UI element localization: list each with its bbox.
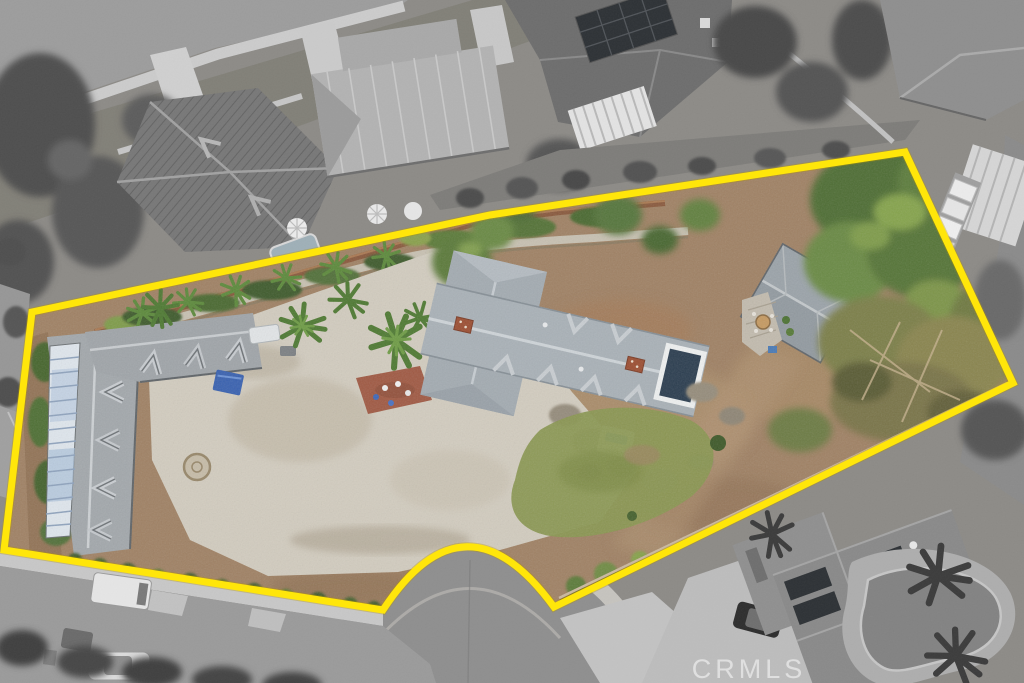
watermark-text: CRMLS: [692, 654, 807, 683]
photo-grain: [0, 0, 1024, 683]
aerial-photo: CRMLS: [0, 0, 1024, 683]
